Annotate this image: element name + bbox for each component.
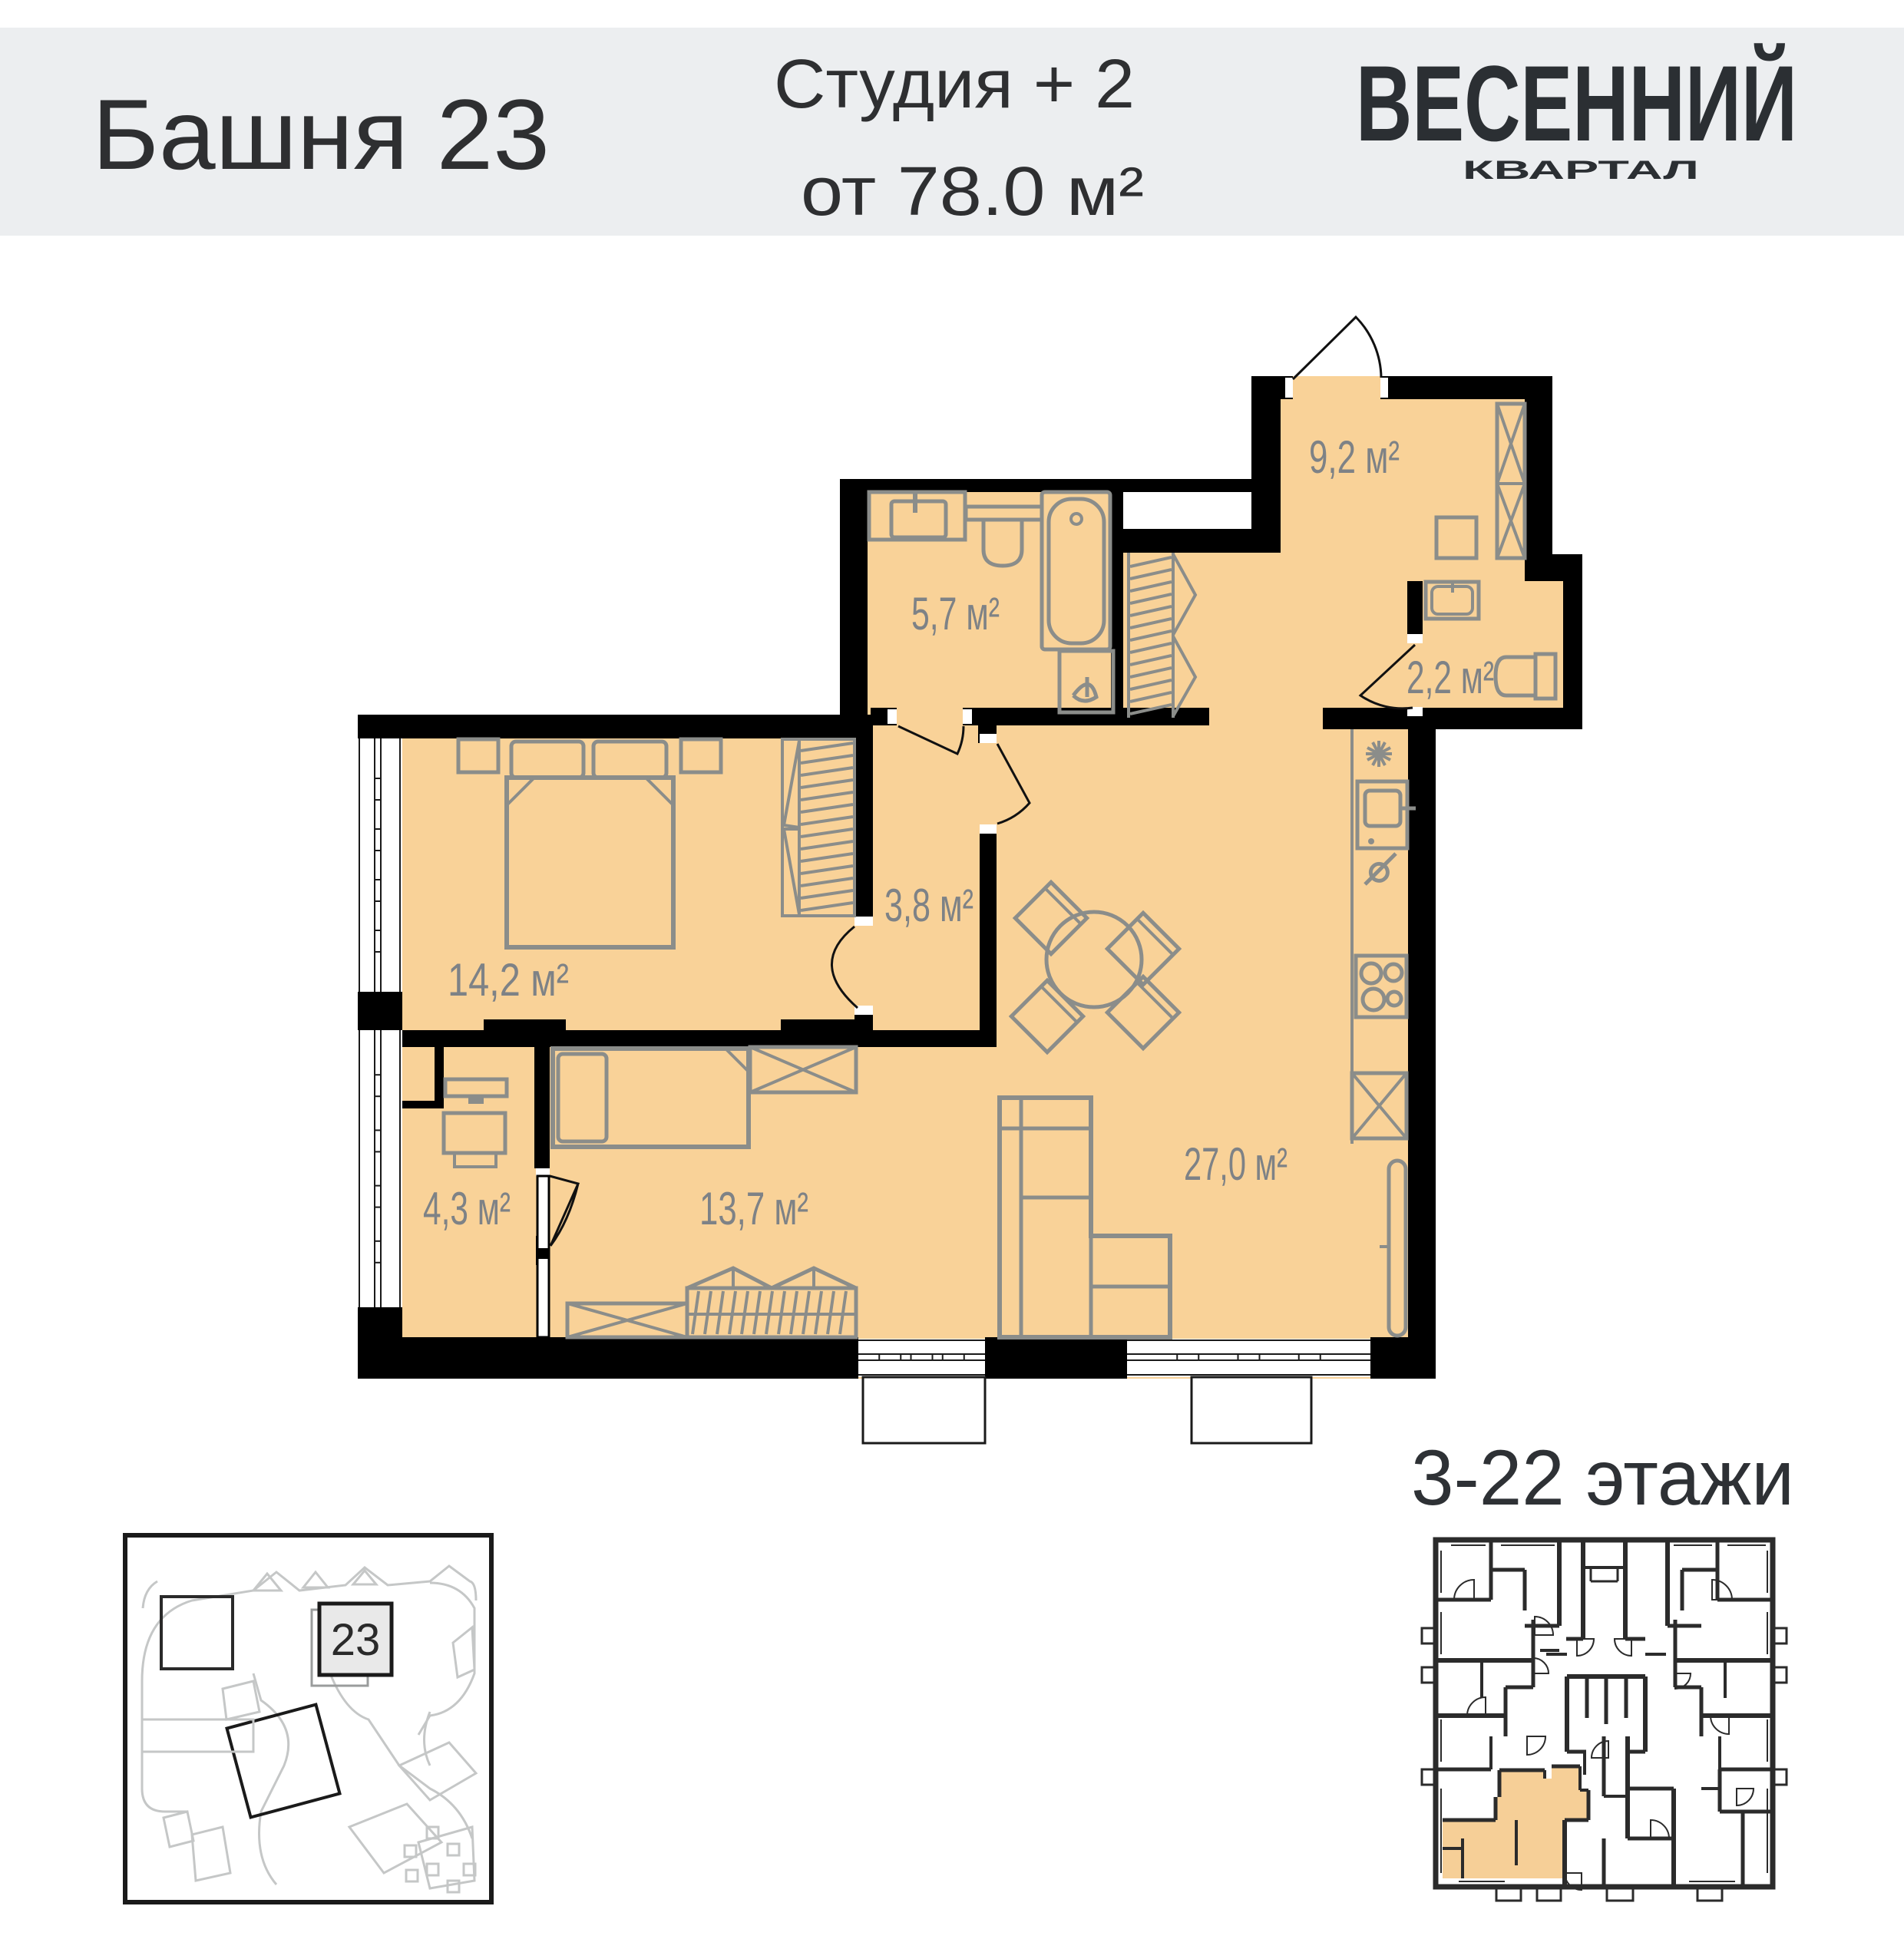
- svg-text:КВАРТАЛ: КВАРТАЛ: [1463, 156, 1699, 185]
- svg-text:9,2 м²: 9,2 м²: [1309, 431, 1400, 483]
- svg-text:Башня 23: Башня 23: [92, 78, 550, 190]
- svg-text:14,2 м²: 14,2 м²: [448, 954, 569, 1006]
- svg-text:3-22 этажи: 3-22 этажи: [1411, 1434, 1794, 1521]
- svg-text:от 78.0 м²: от 78.0 м²: [801, 154, 1144, 230]
- svg-text:3,8 м²: 3,8 м²: [884, 880, 973, 931]
- svg-text:2,2 м²: 2,2 м²: [1407, 652, 1494, 703]
- svg-text:27,0 м²: 27,0 м²: [1184, 1138, 1288, 1190]
- svg-text:13,7 м²: 13,7 м²: [699, 1183, 808, 1234]
- svg-text:ВЕСЕННИЙ: ВЕСЕННИЙ: [1356, 43, 1797, 164]
- svg-text:Студия + 2: Студия + 2: [774, 46, 1135, 123]
- svg-text:4,3 м²: 4,3 м²: [423, 1183, 511, 1234]
- svg-text:5,7 м²: 5,7 м²: [911, 588, 1000, 639]
- svg-text:23: 23: [331, 1615, 381, 1665]
